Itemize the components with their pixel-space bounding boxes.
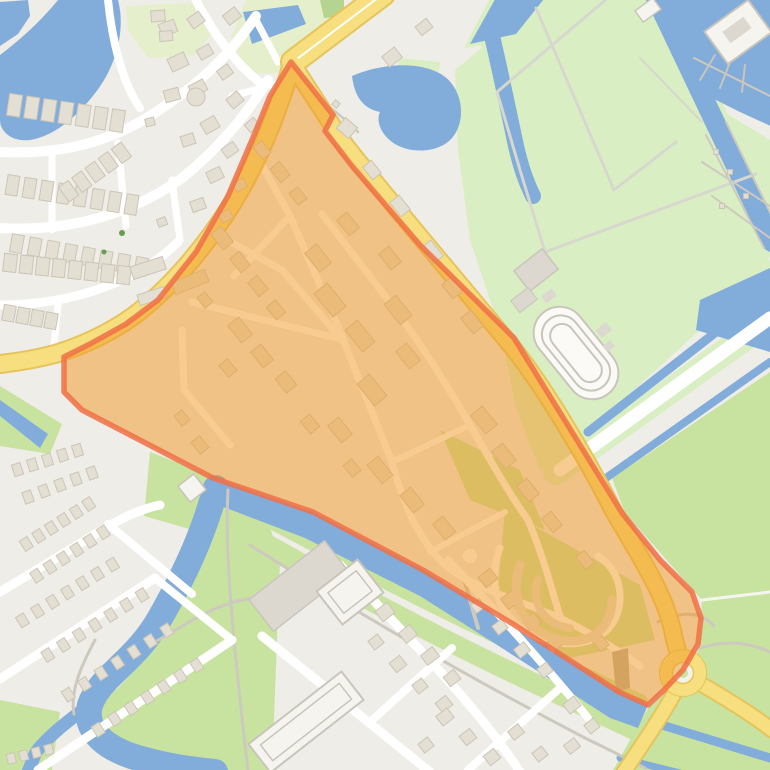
- terrace-row-1: [27, 237, 42, 257]
- terrace-row-1: [16, 307, 31, 325]
- shed: [145, 117, 156, 127]
- terrace-row-6: [109, 109, 125, 133]
- shed: [714, 150, 719, 155]
- terrace-row-6: [107, 191, 122, 213]
- round-building: [187, 88, 205, 106]
- terrace-row-1: [19, 255, 34, 274]
- shed: [728, 170, 733, 175]
- shed: [720, 204, 725, 209]
- tree: [102, 250, 107, 255]
- terrace-row-4: [75, 104, 91, 128]
- terrace-row-5: [84, 262, 99, 281]
- terrace-row-3: [44, 312, 59, 330]
- map-canvas[interactable]: [0, 0, 770, 770]
- shed: [744, 194, 749, 199]
- house: [151, 10, 166, 22]
- tree: [119, 230, 125, 236]
- terrace-row-0: [5, 175, 20, 197]
- terrace-row-1: [24, 96, 40, 120]
- house: [159, 30, 173, 41]
- terrace-row-0: [9, 234, 24, 254]
- terrace-row-2: [39, 180, 54, 202]
- terrace-row-0: [7, 93, 23, 117]
- terrace-row-7: [124, 194, 139, 216]
- terrace-row-2: [35, 257, 50, 276]
- terrace-row-3: [58, 101, 74, 125]
- terrace-row-2: [30, 309, 45, 327]
- map-viewport[interactable]: [0, 0, 770, 770]
- terrace-row-3: [51, 258, 66, 277]
- terrace-row-1: [22, 177, 37, 199]
- terrace-row-5: [92, 106, 108, 130]
- houses-bl-0: [6, 753, 16, 765]
- terrace-row-2: [45, 240, 60, 260]
- terrace-row-5: [90, 188, 105, 210]
- terrace-row-0: [3, 253, 18, 272]
- houses-bl-2: [31, 747, 41, 759]
- houses-bl-3: [44, 744, 54, 756]
- terrace-row-2: [41, 99, 57, 123]
- terrace-row-7: [116, 265, 131, 284]
- terrace-row-4: [68, 260, 83, 279]
- terrace-row-6: [100, 264, 115, 283]
- terrace-row-0: [2, 304, 17, 322]
- houses-bl-1: [19, 750, 29, 762]
